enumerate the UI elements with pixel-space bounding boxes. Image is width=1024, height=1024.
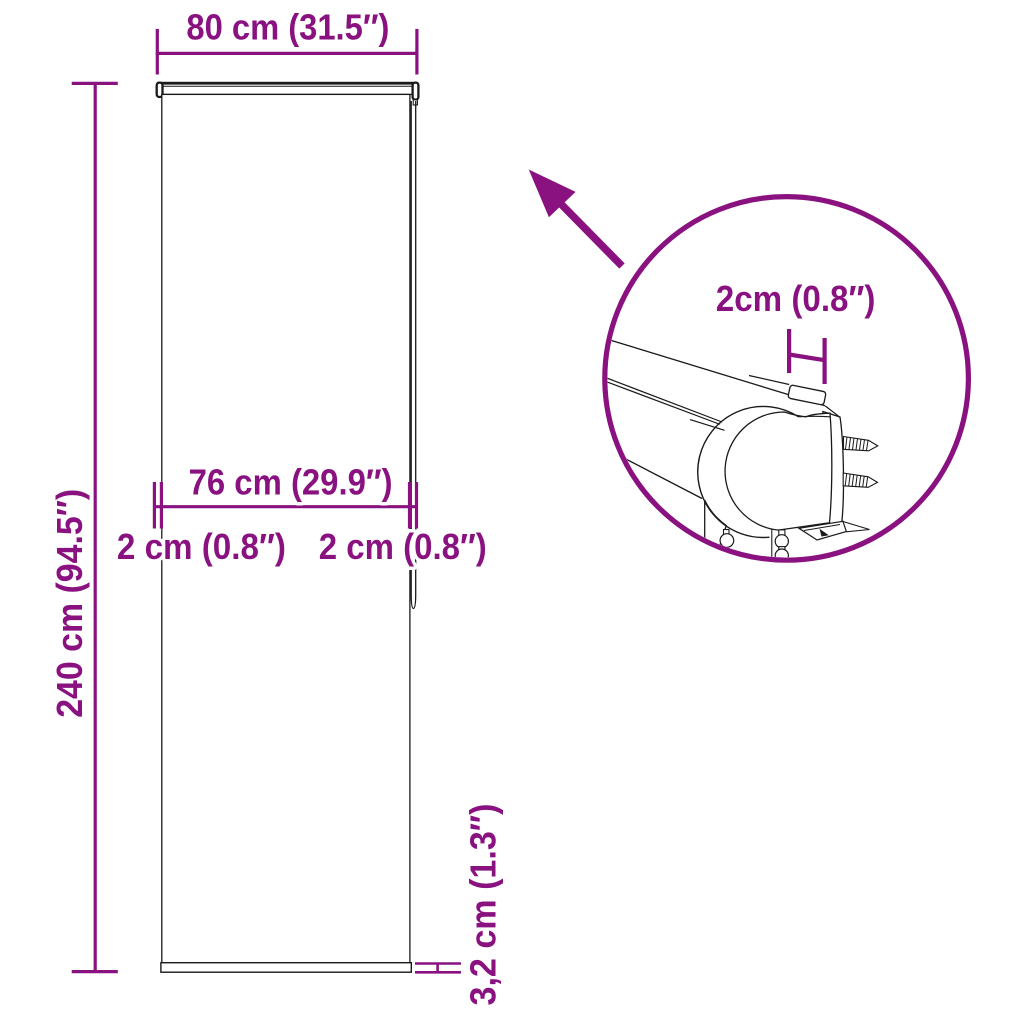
svg-text:3,2 cm (1.3″): 3,2 cm (1.3″) (463, 804, 504, 1006)
svg-text:76 cm (29.9″): 76 cm (29.9″) (189, 461, 393, 502)
svg-text:2 cm (0.8″): 2 cm (0.8″) (319, 526, 487, 567)
svg-text:80 cm (31.5″): 80 cm (31.5″) (186, 7, 389, 48)
svg-text:240 cm (94.5″): 240 cm (94.5″) (49, 489, 90, 718)
svg-text:2 cm (0.8″): 2 cm (0.8″) (117, 526, 286, 567)
svg-text:2cm (0.8″): 2cm (0.8″) (716, 278, 876, 319)
